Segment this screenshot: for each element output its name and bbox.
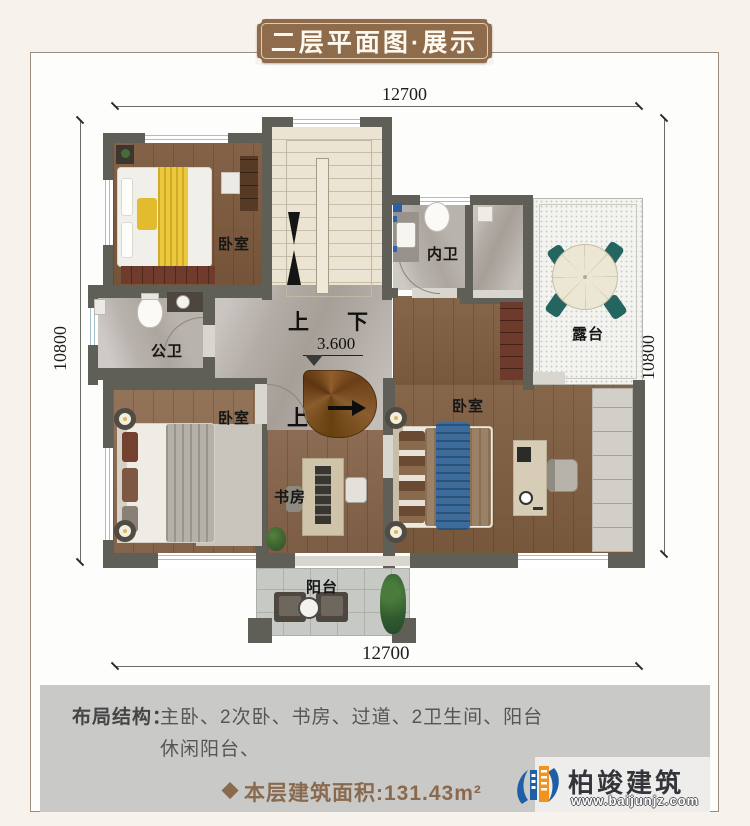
title-badge: 二层平面图·展示 — [257, 19, 492, 63]
plant — [266, 527, 286, 551]
label-inner-bath: 内卫 — [427, 243, 459, 264]
layout-structure-line2: 休闲阳台、 — [160, 734, 260, 761]
pillow — [122, 468, 138, 502]
pillow — [121, 222, 133, 258]
wall — [203, 285, 215, 325]
dim-bottom: 12700 — [362, 643, 410, 665]
balcony-pier — [248, 618, 272, 643]
blue-runner — [436, 422, 470, 530]
wall — [262, 117, 272, 300]
wall — [383, 288, 398, 298]
stair-rail — [316, 158, 329, 294]
dim-line-bottom — [115, 666, 640, 667]
label-bedroom-bl: 卧室 — [218, 407, 250, 428]
blanket — [166, 424, 214, 542]
dim-line-left — [80, 120, 81, 563]
window — [420, 195, 470, 205]
label-public-bath: 公卫 — [151, 340, 183, 361]
area-diamond-icon: ◆ — [222, 777, 239, 802]
stair-arrow-icon — [287, 250, 301, 285]
label-bedroom-tl: 卧室 — [218, 233, 250, 254]
chair — [345, 477, 367, 503]
bath-fixture — [94, 299, 106, 315]
desk-items — [315, 466, 331, 524]
speaker — [519, 491, 533, 505]
layout-structure-line1: 主卧、2次卧、书房、过道、2卫生间、阳台 — [160, 702, 543, 729]
label-bedroom-r: 卧室 — [452, 395, 484, 416]
label-balcony: 阳台 — [306, 576, 338, 597]
label-down: 下 — [347, 306, 368, 336]
cabinet — [221, 172, 240, 194]
window — [103, 448, 113, 540]
company-url[interactable]: www.baijunjz.com — [571, 793, 699, 808]
label-terrace: 露台 — [572, 323, 604, 344]
window — [518, 553, 608, 568]
bedside-lamp — [114, 520, 136, 542]
wardrobe — [240, 156, 258, 211]
window — [158, 553, 256, 568]
chair-back — [547, 459, 555, 492]
bedside-lamp — [385, 521, 407, 543]
wall — [103, 378, 255, 390]
plant — [121, 149, 130, 158]
spiral-arrow-icon — [352, 400, 366, 416]
door-threshold — [255, 384, 267, 424]
bedside-lamp — [114, 408, 136, 430]
label-up: 上 — [288, 306, 309, 336]
pillow-stack — [399, 431, 425, 523]
toilet — [137, 296, 163, 328]
bath-accessory — [393, 216, 397, 222]
pillow — [121, 178, 133, 216]
wall — [465, 205, 473, 295]
closet — [592, 388, 633, 552]
window — [145, 133, 228, 143]
sink — [176, 295, 190, 309]
tv — [517, 447, 531, 462]
toilet-tank — [141, 293, 159, 300]
bath-accessory — [393, 246, 397, 252]
balcony-table — [298, 597, 320, 619]
cabinet-detail — [533, 507, 543, 510]
label-elevation: 3.600 — [317, 334, 355, 354]
plant — [380, 574, 406, 634]
layout-structure-label: 布局结构： — [72, 702, 172, 729]
dim-line-top — [115, 106, 640, 107]
label-study: 书房 — [274, 486, 306, 507]
pillow — [122, 432, 138, 462]
page-title: 二层平面图·展示 — [257, 19, 492, 63]
balcony-door — [295, 556, 410, 566]
spiral-arrow-line — [328, 406, 354, 410]
door-threshold — [203, 325, 215, 357]
dresser — [121, 266, 215, 284]
stair-arrow-icon — [288, 212, 300, 245]
yellow-blanket — [158, 167, 188, 267]
shelf — [477, 206, 493, 222]
elevation-marker-icon — [305, 355, 323, 366]
wall — [633, 380, 645, 568]
umbrella-center — [583, 275, 587, 279]
wall — [203, 357, 215, 380]
window — [293, 117, 360, 127]
wardrobe — [500, 302, 523, 380]
floor-area-text: 本层建筑面积:131.43m² — [244, 777, 482, 807]
window — [103, 180, 113, 245]
floor-plan-page: 二层平面图·展示 12700 12700 10800 10800 — [0, 0, 750, 826]
dim-left: 10800 — [50, 326, 71, 371]
bath-accessory — [393, 203, 402, 212]
dim-line-right — [664, 118, 665, 555]
terrace-door — [533, 372, 565, 384]
sink — [396, 222, 416, 248]
dim-top: 12700 — [382, 84, 427, 105]
toilet — [424, 202, 450, 232]
bedside-lamp — [385, 407, 407, 429]
chair-cushion — [321, 596, 343, 616]
wall — [382, 117, 392, 300]
company-logo-icon[interactable] — [512, 760, 564, 812]
door-threshold — [473, 290, 523, 298]
wall — [523, 195, 533, 390]
yellow-pillow — [137, 198, 157, 230]
